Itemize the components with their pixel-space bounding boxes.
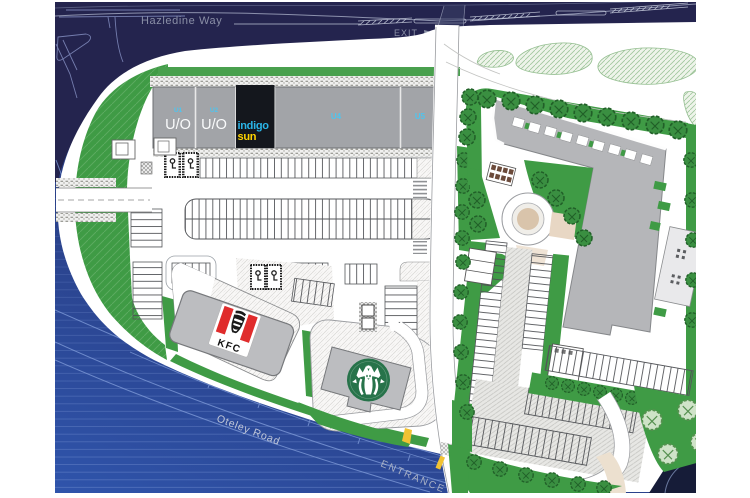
svg-text:U4: U4 xyxy=(331,112,342,121)
svg-text:sun: sun xyxy=(238,131,257,143)
svg-text:U/O: U/O xyxy=(201,117,227,133)
svg-text:Hazledine Way: Hazledine Way xyxy=(141,15,222,27)
svg-text:U/O: U/O xyxy=(165,117,191,133)
svg-text:U5: U5 xyxy=(415,112,426,121)
svg-text:U1: U1 xyxy=(174,107,183,114)
svg-text:U2: U2 xyxy=(210,107,219,114)
